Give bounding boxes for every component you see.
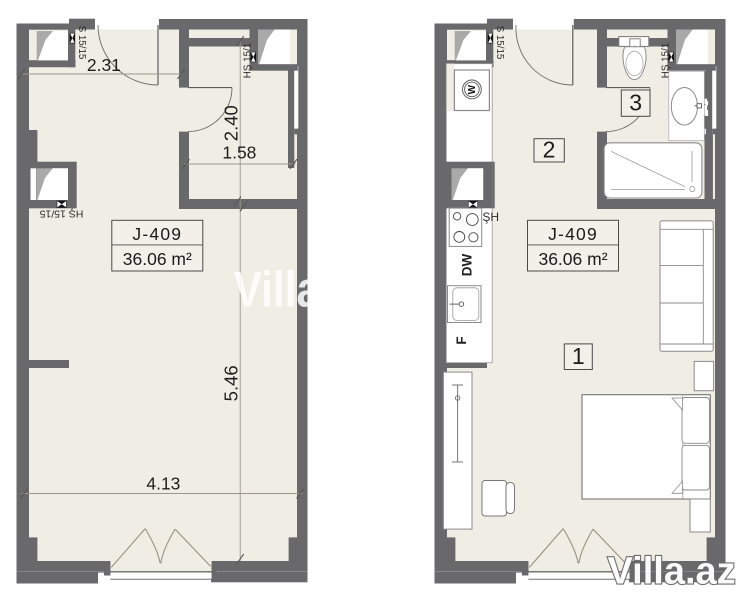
svg-text:4.13: 4.13 — [146, 474, 180, 494]
svg-text:J-409: J-409 — [132, 224, 182, 244]
svg-text:Villa.az: Villa.az — [608, 551, 736, 593]
svg-text:3: 3 — [629, 90, 642, 116]
svg-text:DW: DW — [460, 254, 475, 277]
svg-text:1: 1 — [572, 343, 585, 369]
svg-text:5.46: 5.46 — [220, 365, 241, 401]
svg-text:HŞ 15/15: HŞ 15/15 — [39, 207, 83, 219]
svg-text:S 15/15: S 15/15 — [76, 26, 87, 60]
svg-text:Villa.az: Villa.az — [234, 261, 377, 317]
svg-text:2.40: 2.40 — [220, 105, 241, 141]
svg-text:2.31: 2.31 — [87, 55, 121, 75]
svg-text:F: F — [454, 336, 469, 344]
svg-text:36.06 m²: 36.06 m² — [538, 249, 607, 269]
svg-text:W: W — [467, 84, 478, 94]
svg-text:1.58: 1.58 — [222, 143, 256, 163]
svg-text:36.06 m²: 36.06 m² — [123, 249, 192, 269]
svg-text:2: 2 — [543, 137, 556, 163]
svg-text:ŞH: ŞH — [482, 210, 499, 224]
svg-text:S 15/15: S 15/15 — [494, 26, 505, 60]
svg-text:HŞ 15/1: HŞ 15/1 — [242, 43, 253, 78]
svg-text:J-409: J-409 — [548, 224, 598, 244]
